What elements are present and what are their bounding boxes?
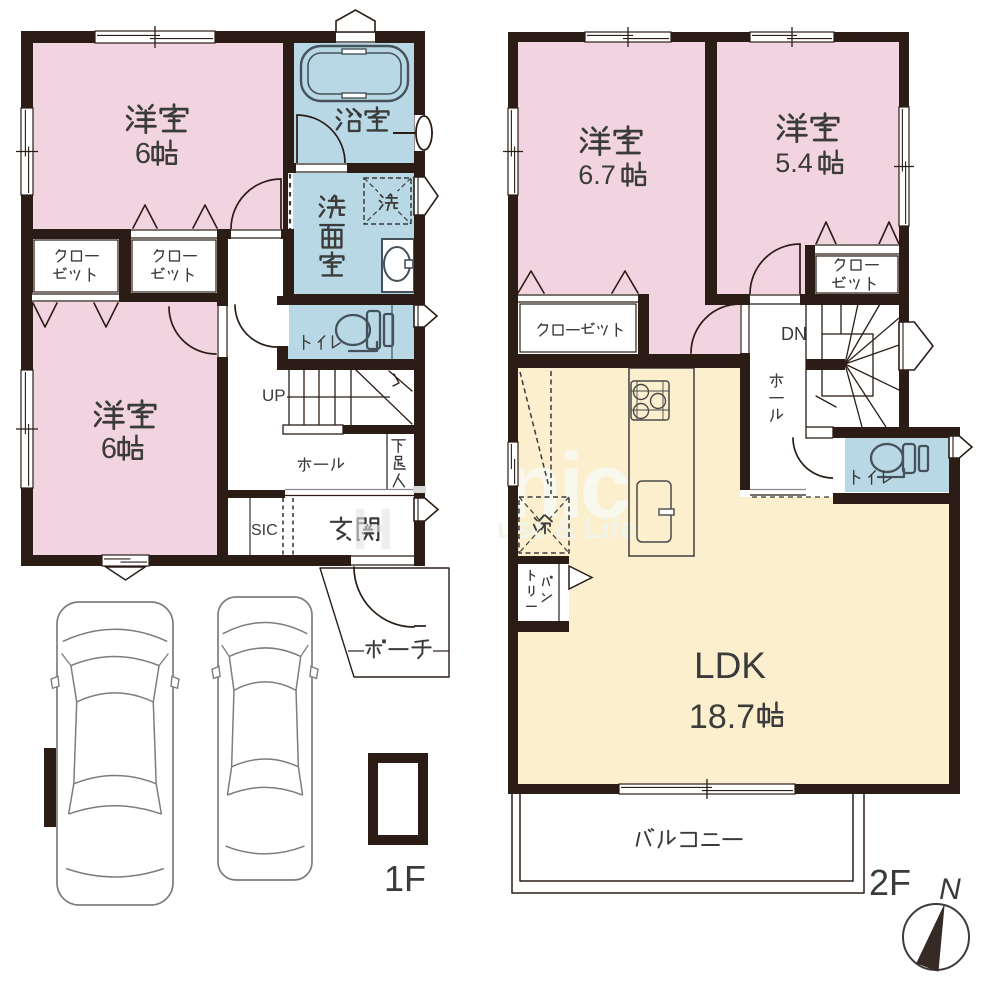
svg-text:2F: 2F: [869, 862, 911, 903]
svg-text:18.7: 18.7: [689, 698, 755, 736]
svg-text:SIC: SIC: [251, 522, 278, 539]
svg-text:5.4: 5.4: [775, 148, 813, 178]
svg-text:LDK: LDK: [694, 645, 766, 686]
svg-text:6: 6: [135, 138, 151, 170]
svg-text:6.7: 6.7: [578, 160, 616, 190]
svg-text:1F: 1F: [384, 858, 426, 899]
svg-text:N: N: [939, 873, 961, 906]
svg-text:6: 6: [101, 433, 117, 465]
svg-text:H: H: [352, 497, 394, 562]
svg-text:DN: DN: [781, 324, 807, 344]
svg-text:UP: UP: [262, 386, 286, 405]
